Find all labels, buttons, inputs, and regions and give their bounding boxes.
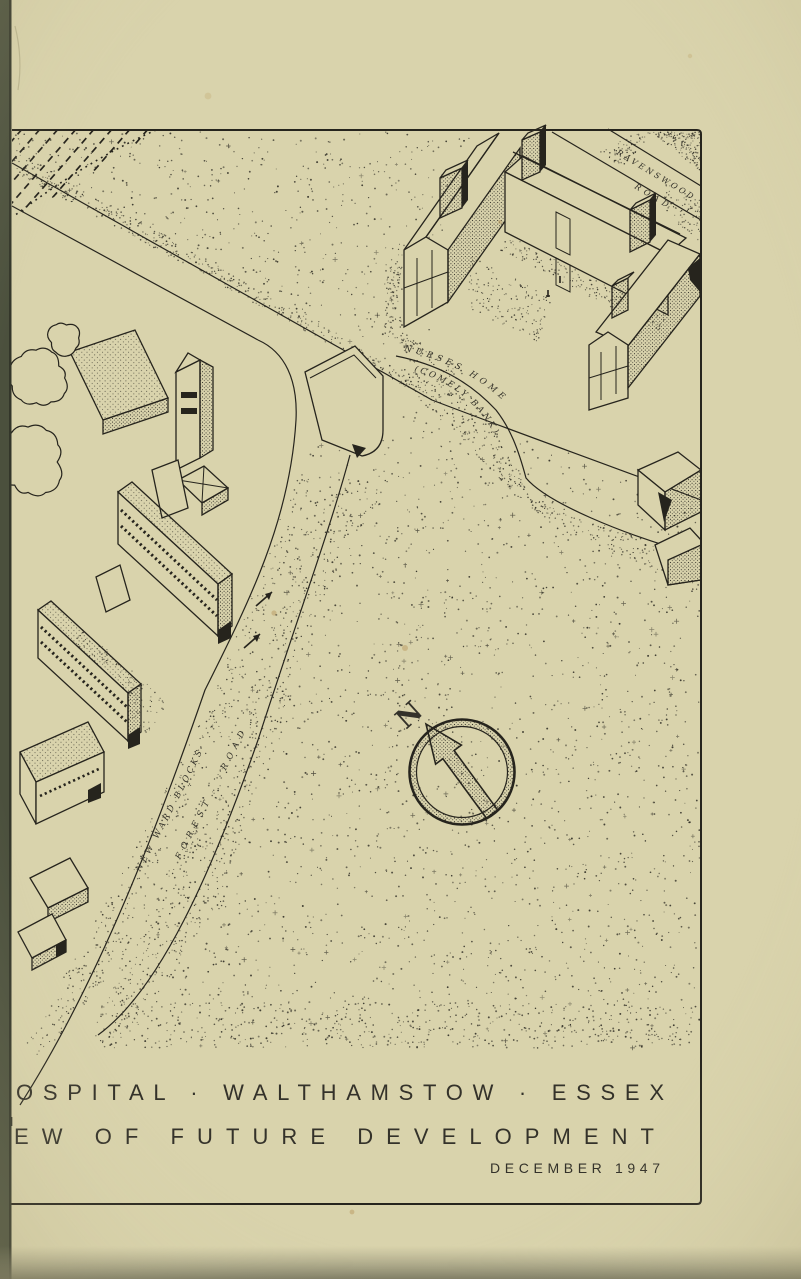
tower-front bbox=[176, 360, 200, 470]
architectural-drawing: N RAVENSWOOD ROAD NURSES HOME (COMELY BA… bbox=[0, 0, 801, 1279]
tower-side bbox=[200, 360, 213, 458]
tower-window-band bbox=[181, 392, 197, 398]
se-wing-gable-end bbox=[589, 332, 628, 410]
tower-window-band bbox=[181, 408, 197, 414]
scanned-book-page: N RAVENSWOOD ROAD NURSES HOME (COMELY BA… bbox=[0, 0, 801, 1279]
page-bottom-shadow bbox=[0, 1246, 801, 1279]
binding-edge-shadow-line bbox=[9, 0, 12, 1279]
